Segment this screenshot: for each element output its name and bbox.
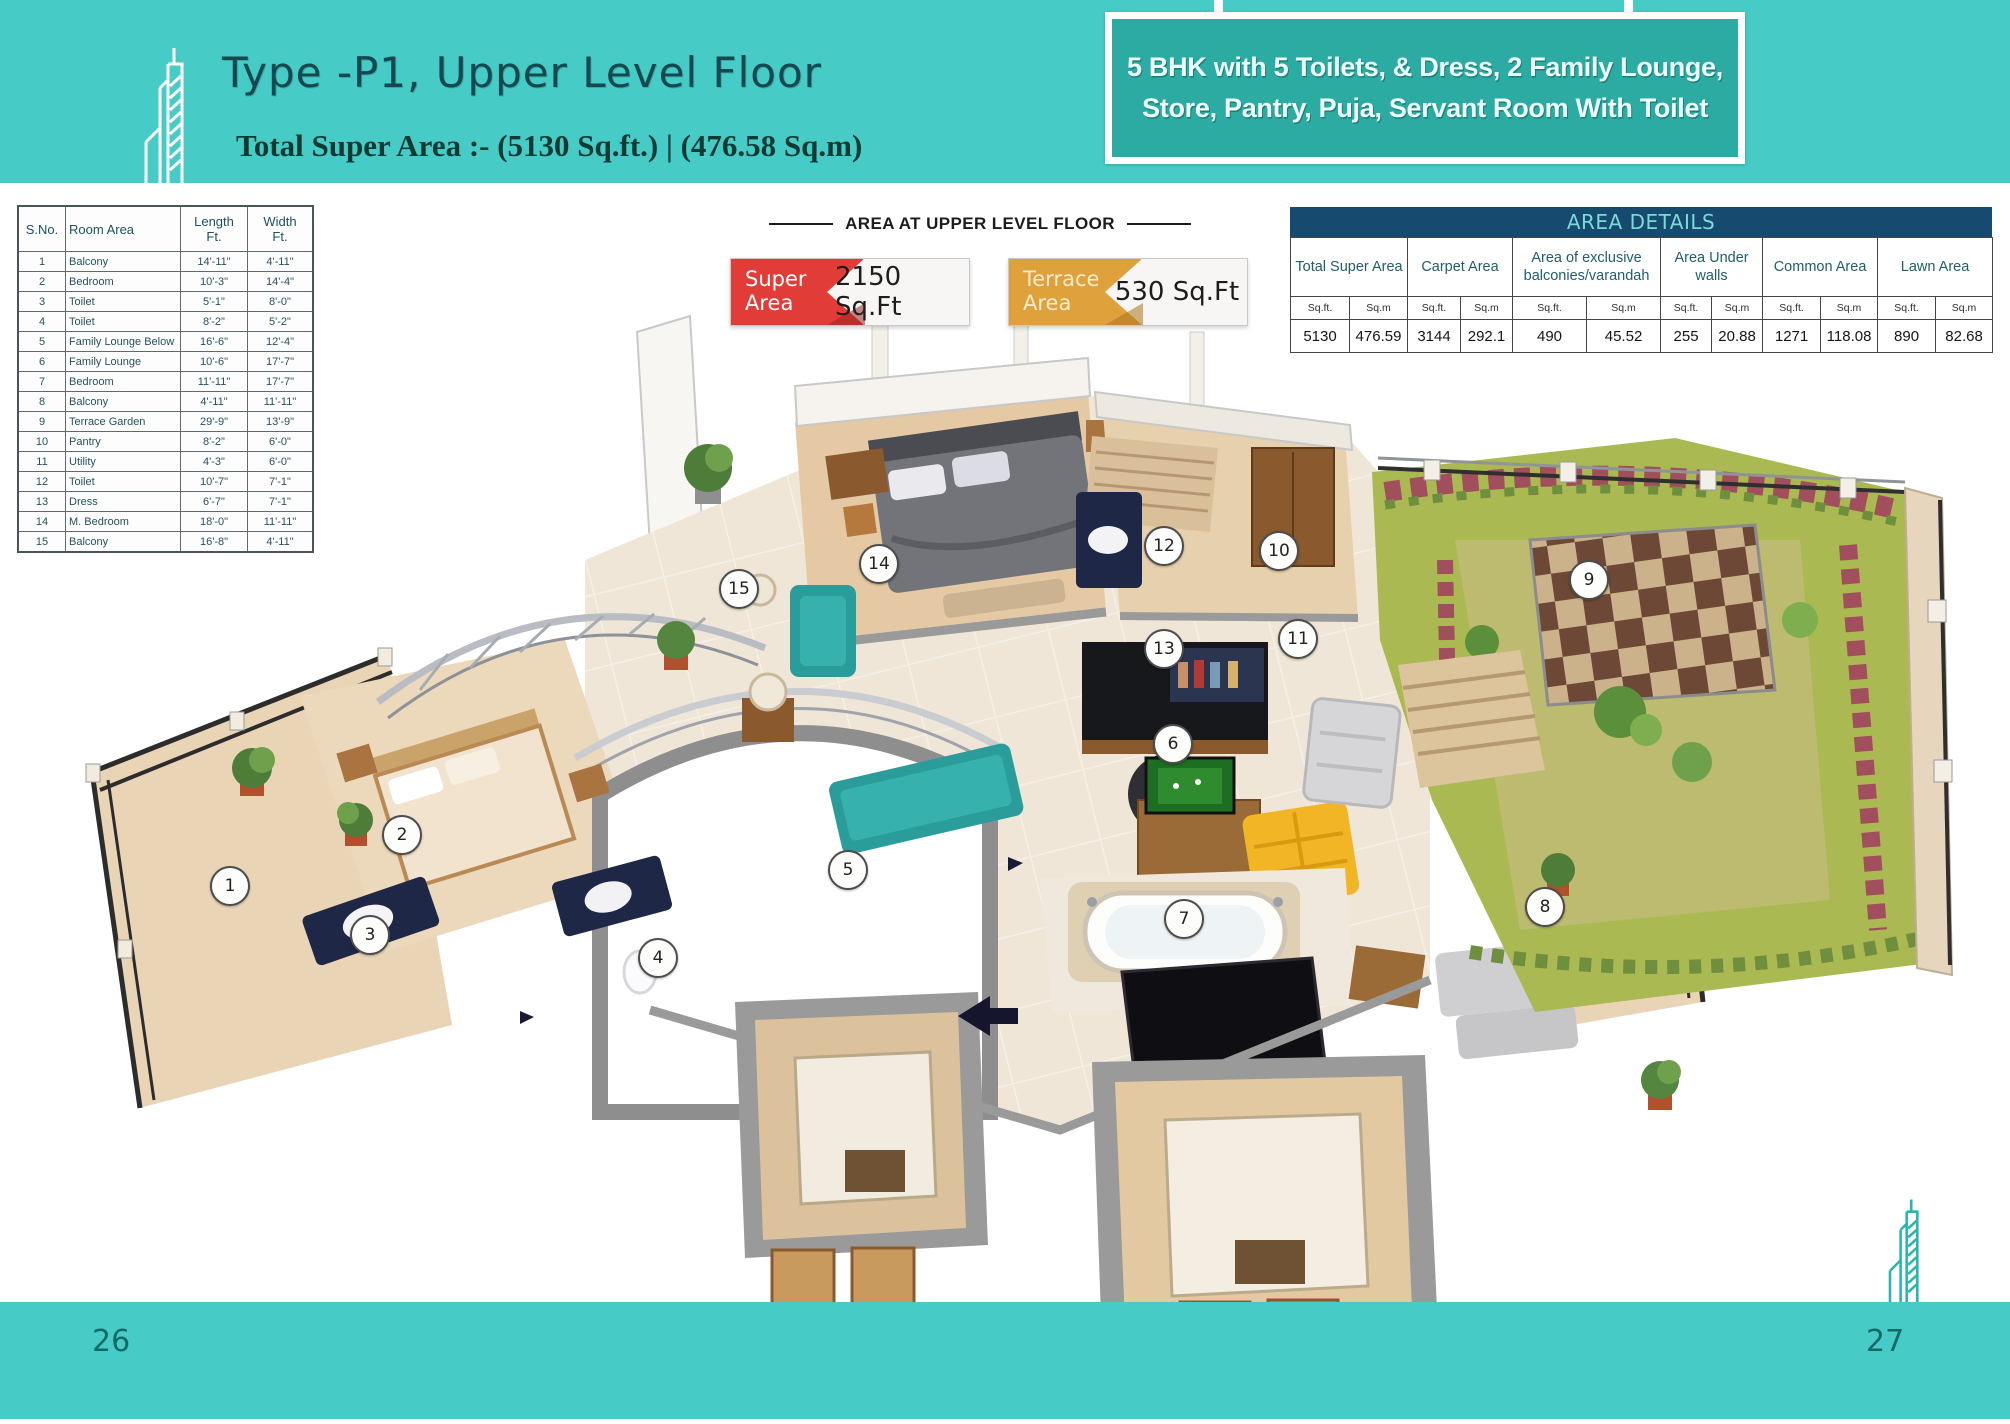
- room-marker-5: 5: [828, 850, 868, 890]
- builder-logo-top: [138, 46, 212, 183]
- room-marker-15: 15: [719, 569, 759, 609]
- toilet12-basin: [1076, 492, 1142, 588]
- terrace-area-label: Terrace Area: [1023, 267, 1115, 315]
- terrace-area-value: 530 Sq.Ft: [1113, 259, 1241, 325]
- bath-room: [1040, 868, 1425, 1078]
- bottom-band: [0, 1302, 2010, 1419]
- double-height-void: [575, 691, 1008, 1112]
- room-marker-14: 14: [859, 544, 899, 584]
- bedroom2-floor: [300, 640, 645, 952]
- builder-logo-bottom: [1876, 1198, 1948, 1302]
- area-column-label: Common Area: [1763, 238, 1878, 297]
- page-title: Type -P1, Upper Level Floor: [222, 48, 822, 97]
- table-row: 8Balcony4'-11"11'-11": [18, 392, 313, 412]
- area-details-title: AREA DETAILS: [1290, 207, 1992, 237]
- room-marker-6: 6: [1153, 724, 1193, 764]
- room-marker-9: 9: [1569, 560, 1609, 600]
- table-row: 7Bedroom11'-11"17'-7": [18, 372, 313, 392]
- table-row: 4Toilet8'-2"5'-2": [18, 312, 313, 332]
- area-column-label: Area of exclusive balconies/varandah: [1513, 238, 1661, 297]
- super-area-label: Super Area: [745, 267, 837, 315]
- room-marker-12: 12: [1144, 526, 1184, 566]
- table-row: 6Family Lounge10'-6"17'-7": [18, 352, 313, 372]
- table-row: 3Toilet5'-1"8'-0": [18, 292, 313, 312]
- plants: [232, 444, 1681, 1110]
- room-marker-4: 4: [638, 938, 678, 978]
- heading-dash-left: [769, 223, 833, 225]
- page-number-left: 26: [92, 1324, 130, 1359]
- table-row: 1Balcony14'-11"4'-11": [18, 252, 313, 272]
- balcony-left: [86, 648, 452, 1108]
- banner-line-1: 5 BHK with 5 Toilets, & Dress, 2 Family …: [1127, 52, 1723, 83]
- room-marker-11: 11: [1278, 619, 1318, 659]
- main-floor: [585, 395, 1430, 1130]
- room-dimensions-table: S.No. Room Area LengthFt. WidthFt. 1Balc…: [17, 205, 314, 553]
- super-area-badge: Super Area 2150 Sq.Ft: [730, 258, 970, 326]
- room-marker-13: 13: [1144, 629, 1184, 669]
- col-header-length: LengthFt.: [181, 206, 248, 252]
- terrace-area-badge: Terrace Area 530 Sq.Ft: [1008, 258, 1248, 326]
- area-column-label: Lawn Area: [1878, 238, 1993, 297]
- terrace-garden: [1372, 438, 1952, 1012]
- table-row: 15Balcony16'-8"4'-11": [18, 532, 313, 553]
- banner-line-2: Store, Pantry, Puja, Servant Room With T…: [1142, 93, 1708, 124]
- balcony-right: [1434, 842, 1703, 1061]
- table-row: 12Toilet10'-7"7'-1": [18, 472, 313, 492]
- super-area-value: 2150 Sq.Ft: [835, 259, 963, 325]
- table-row: 2Bedroom10'-3"14'-4": [18, 272, 313, 292]
- area-details-panel: AREA DETAILS Total Super AreaCarpet Area…: [1290, 207, 1992, 353]
- area-column-label: Carpet Area: [1408, 238, 1513, 297]
- white-wall: [637, 316, 708, 645]
- area-column-label: Area Under walls: [1661, 238, 1763, 297]
- col-header-sno: S.No.: [18, 206, 66, 252]
- room-marker-3: 3: [350, 915, 390, 955]
- table-row: 9Terrace Garden29'-9"13'-9": [18, 412, 313, 432]
- teal-sofa-set: [742, 575, 1025, 856]
- pantry-kitchen: [1085, 392, 1358, 618]
- curved-railing: [378, 614, 765, 718]
- master-bedroom: [795, 358, 1126, 645]
- room-marker-8: 8: [1525, 887, 1565, 927]
- area-details-units: Sq.ft.Sq.mSq.ft.Sq.mSq.ft.Sq.mSq.ft.Sq.m…: [1291, 297, 1993, 320]
- family-lounge-furniture: [1082, 642, 1401, 910]
- room-marker-2: 2: [382, 815, 422, 855]
- page-subtitle: Total Super Area :- (5130 Sq.ft.) | (476…: [236, 128, 862, 164]
- room-table-body: 1Balcony14'-11"4'-11"2Bedroom10'-3"14'-4…: [18, 252, 313, 553]
- area-details-labels: Total Super AreaCarpet AreaArea of exclu…: [1291, 238, 1993, 297]
- page-number-right: 27: [1866, 1324, 1904, 1359]
- area-details-values: 5130476.593144292.149045.5225520.8812711…: [1291, 320, 1993, 353]
- col-header-width: WidthFt.: [248, 206, 314, 252]
- table-row: 10Pantry8'-2"6'-0": [18, 432, 313, 452]
- room-marker-1: 1: [210, 866, 250, 906]
- heading-dash-right: [1127, 223, 1191, 225]
- col-header-room: Room Area: [66, 206, 181, 252]
- bedroom2-bed: [370, 708, 574, 888]
- table-row: 14M. Bedroom18'-0"11'-11": [18, 512, 313, 532]
- toilet4-basin: [551, 854, 674, 937]
- table-row: 11Utility4'-3"6'-0": [18, 452, 313, 472]
- direction-arrow: [520, 845, 1023, 1036]
- table-row: 5Family Lounge Below16'-6"12'-4": [18, 332, 313, 352]
- table-row: 13Dress6'-7"7'-1": [18, 492, 313, 512]
- room-marker-10: 10: [1259, 531, 1299, 571]
- room-marker-7: 7: [1164, 899, 1204, 939]
- feature-banner: 5 BHK with 5 Toilets, & Dress, 2 Family …: [1105, 12, 1745, 164]
- plan-area-heading: AREA AT UPPER LEVEL FLOOR: [735, 214, 1225, 234]
- area-column-label: Total Super Area: [1291, 238, 1408, 297]
- stairwell-shaft-left: [735, 992, 988, 1310]
- area-details-table: Total Super AreaCarpet AreaArea of exclu…: [1290, 237, 1993, 353]
